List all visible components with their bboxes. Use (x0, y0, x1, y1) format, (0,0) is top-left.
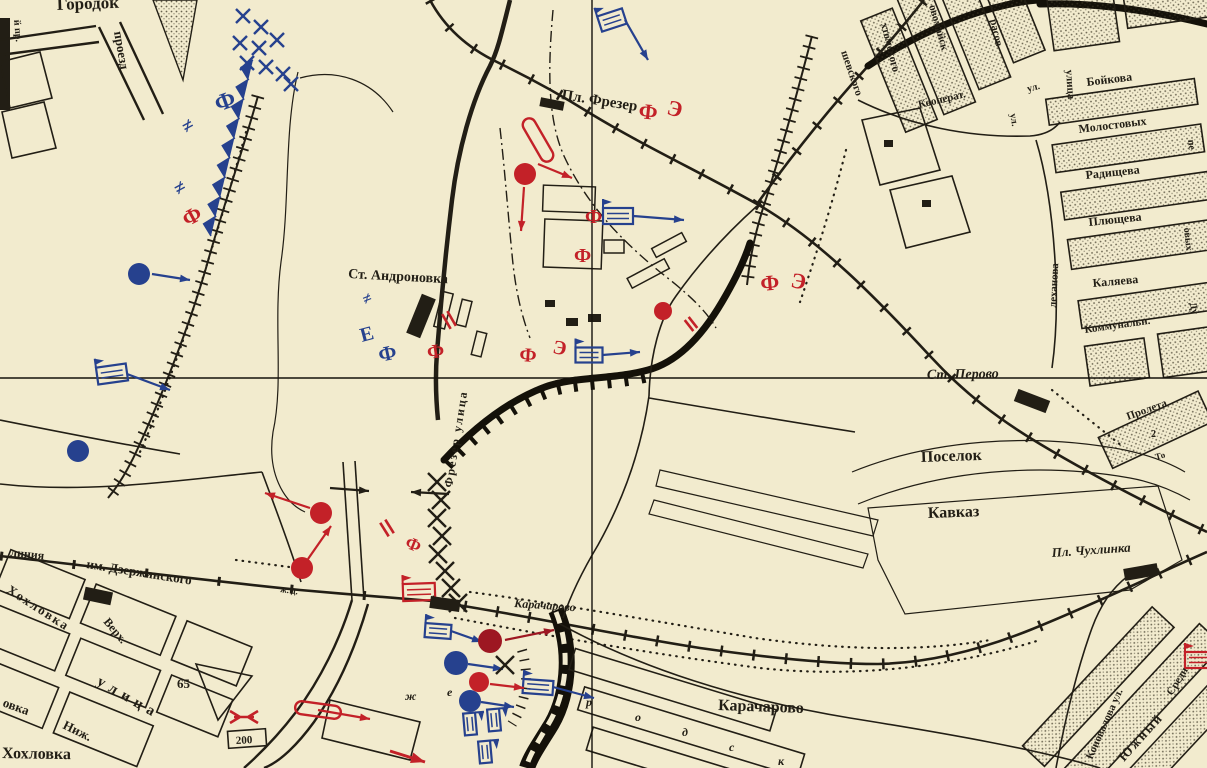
map-label: Кавказ (928, 503, 981, 522)
map-label: улица (1063, 69, 1077, 100)
map-label: о (635, 710, 641, 724)
sym-unit-circle (654, 302, 672, 320)
flagbox-line (407, 594, 431, 595)
sym-tactical-glyph: Ф (585, 206, 602, 228)
map-label: 2 (1151, 429, 1156, 440)
sym-unit-circle (67, 440, 89, 462)
map-label: Хохловка (2, 745, 71, 763)
sym-unit-circle (291, 557, 313, 579)
map-label: ул. (1007, 113, 1020, 128)
map-label: й пр. (11, 19, 24, 42)
map-label: Карачарово (718, 697, 804, 717)
map-label: р (585, 695, 592, 709)
sym-tactical-glyph: Ф (519, 344, 538, 367)
sym-unit-circle (478, 629, 502, 653)
sym-unit-circle (310, 502, 332, 524)
sym-unit-circle (128, 263, 150, 285)
sym-unit-circle (459, 690, 481, 712)
map-label: с (729, 740, 735, 754)
sym-unit-circle (514, 163, 536, 185)
city-map: Ф≠≠≠ЕФФЭФФФФЭФЭФФ Городокпроездй пр.Пл. … (0, 0, 1207, 768)
sym-tactical-glyph: Ф (574, 245, 591, 267)
map-label: к (778, 754, 785, 768)
flagbox-line (407, 589, 431, 590)
map-label: Ст. Перово (927, 367, 999, 383)
map-label: Ду (1187, 302, 1200, 316)
sym-unit-circle (469, 672, 489, 692)
map-label: е (447, 685, 453, 699)
sym-tactical-glyph: Ф (759, 269, 780, 296)
map-label: пе (1185, 139, 1197, 151)
map-label: леханова (1047, 262, 1061, 308)
map-label: 65 (177, 676, 191, 691)
sym-unit-circle (444, 651, 468, 675)
map-label: д (682, 725, 688, 739)
map-label: Поселок (921, 447, 983, 466)
sym-tactical-glyph: Ф (426, 340, 446, 364)
map-label: ж (405, 689, 417, 703)
paper-background (0, 0, 1207, 768)
map-canvas: Ф≠≠≠ЕФФЭФФФФЭФЭФФ Городокпроездй пр.Пл. … (0, 0, 1207, 768)
sym-tactical-glyph: Ф (637, 98, 659, 125)
map-label: 200 (236, 734, 254, 747)
map-label: Городок (56, 0, 119, 14)
